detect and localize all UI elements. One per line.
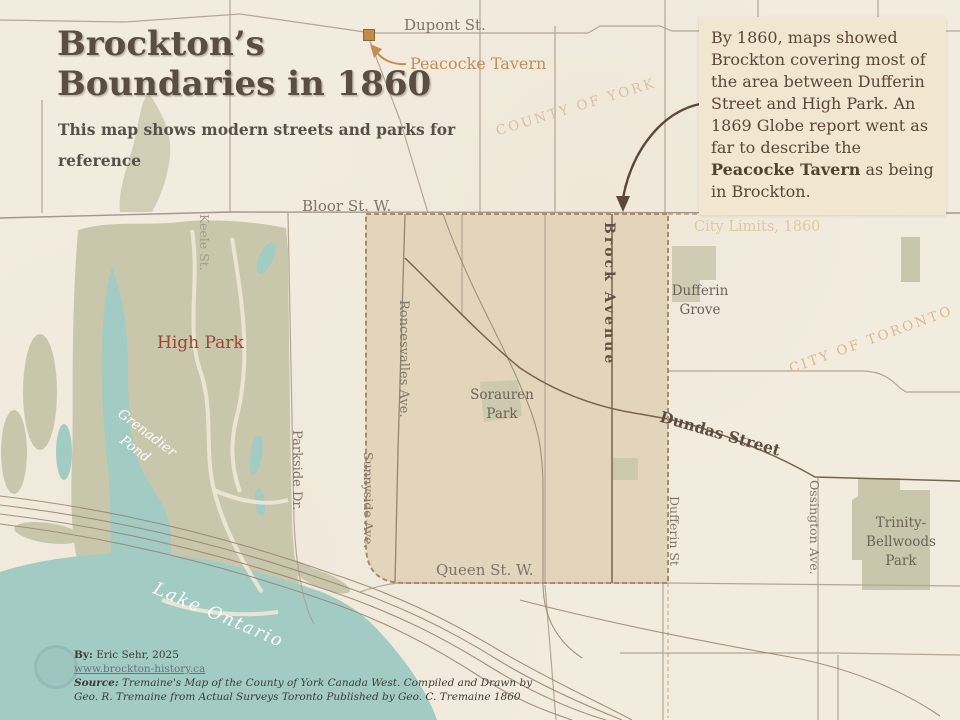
label-ossington-ave: Ossington Ave. [807,480,822,575]
subtitle-line2: reference [58,145,455,176]
attribution-source-label: Source: [74,677,119,689]
label-keele-st: Keele St. [197,214,212,271]
label-dufferin-st: Dufferin St [667,496,682,566]
label-sorauren-park: Sorauren Park [466,386,538,424]
label-peacocke-tavern: Peacocke Tavern [410,54,546,73]
page-title: Brockton’s Boundaries in 1860 [57,24,431,104]
attribution-block: By: Eric Sehr, 2025 www.brockton-history… [74,648,532,704]
attribution-by-label: By: [74,649,93,661]
attribution-by-line: By: Eric Sehr, 2025 [74,648,532,662]
title-line1: Brockton’s [57,24,431,64]
label-brock-avenue: Brock Avenue [601,222,617,366]
label-city-limits-1860: City Limits, 1860 [694,219,820,235]
label-dufferin-grove: Dufferin Grove [664,282,736,320]
attribution-link[interactable]: www.brockton-history.ca [74,662,532,676]
label-bloor-st: Bloor St. W. [302,197,391,215]
page-subtitle: This map shows modern streets and parks … [58,114,455,176]
subtitle-line1: This map shows modern streets and parks … [58,114,455,145]
label-queen-st: Queen St. W. [436,561,534,579]
attribution-by-text: Eric Sehr, 2025 [93,649,179,661]
info-box-bold-text: Peacocke Tavern [711,160,860,179]
attribution-source-line2: Geo. R. Tremaine from Actual Surveys Tor… [74,690,532,704]
attribution-source-text1: Tremaine's Map of the County of York Can… [119,677,532,689]
info-box-text: By 1860, maps showed Brockton covering m… [711,28,928,157]
info-box: By 1860, maps showed Brockton covering m… [699,17,946,215]
attribution-source-line1: Source: Tremaine's Map of the County of … [74,676,532,690]
label-trinity-bellwoods: Trinity-Bellwoods Park [858,514,944,571]
seal-watermark [34,645,78,689]
title-line2: Boundaries in 1860 [57,64,431,104]
map-canvas: Brockton’s Boundaries in 1860 This map s… [0,0,960,720]
label-dupont-st: Dupont St. [404,16,486,34]
info-arrow [616,104,700,212]
label-roncesvalles-ave: Roncesvalles Ave. [396,300,411,418]
peacocke-tavern-marker [363,29,375,41]
label-high-park: High Park [157,333,244,353]
label-parkside-dr: Parkside Dr. [289,430,304,510]
label-sunnyside-ave: Sunnyside Ave. [361,452,376,549]
